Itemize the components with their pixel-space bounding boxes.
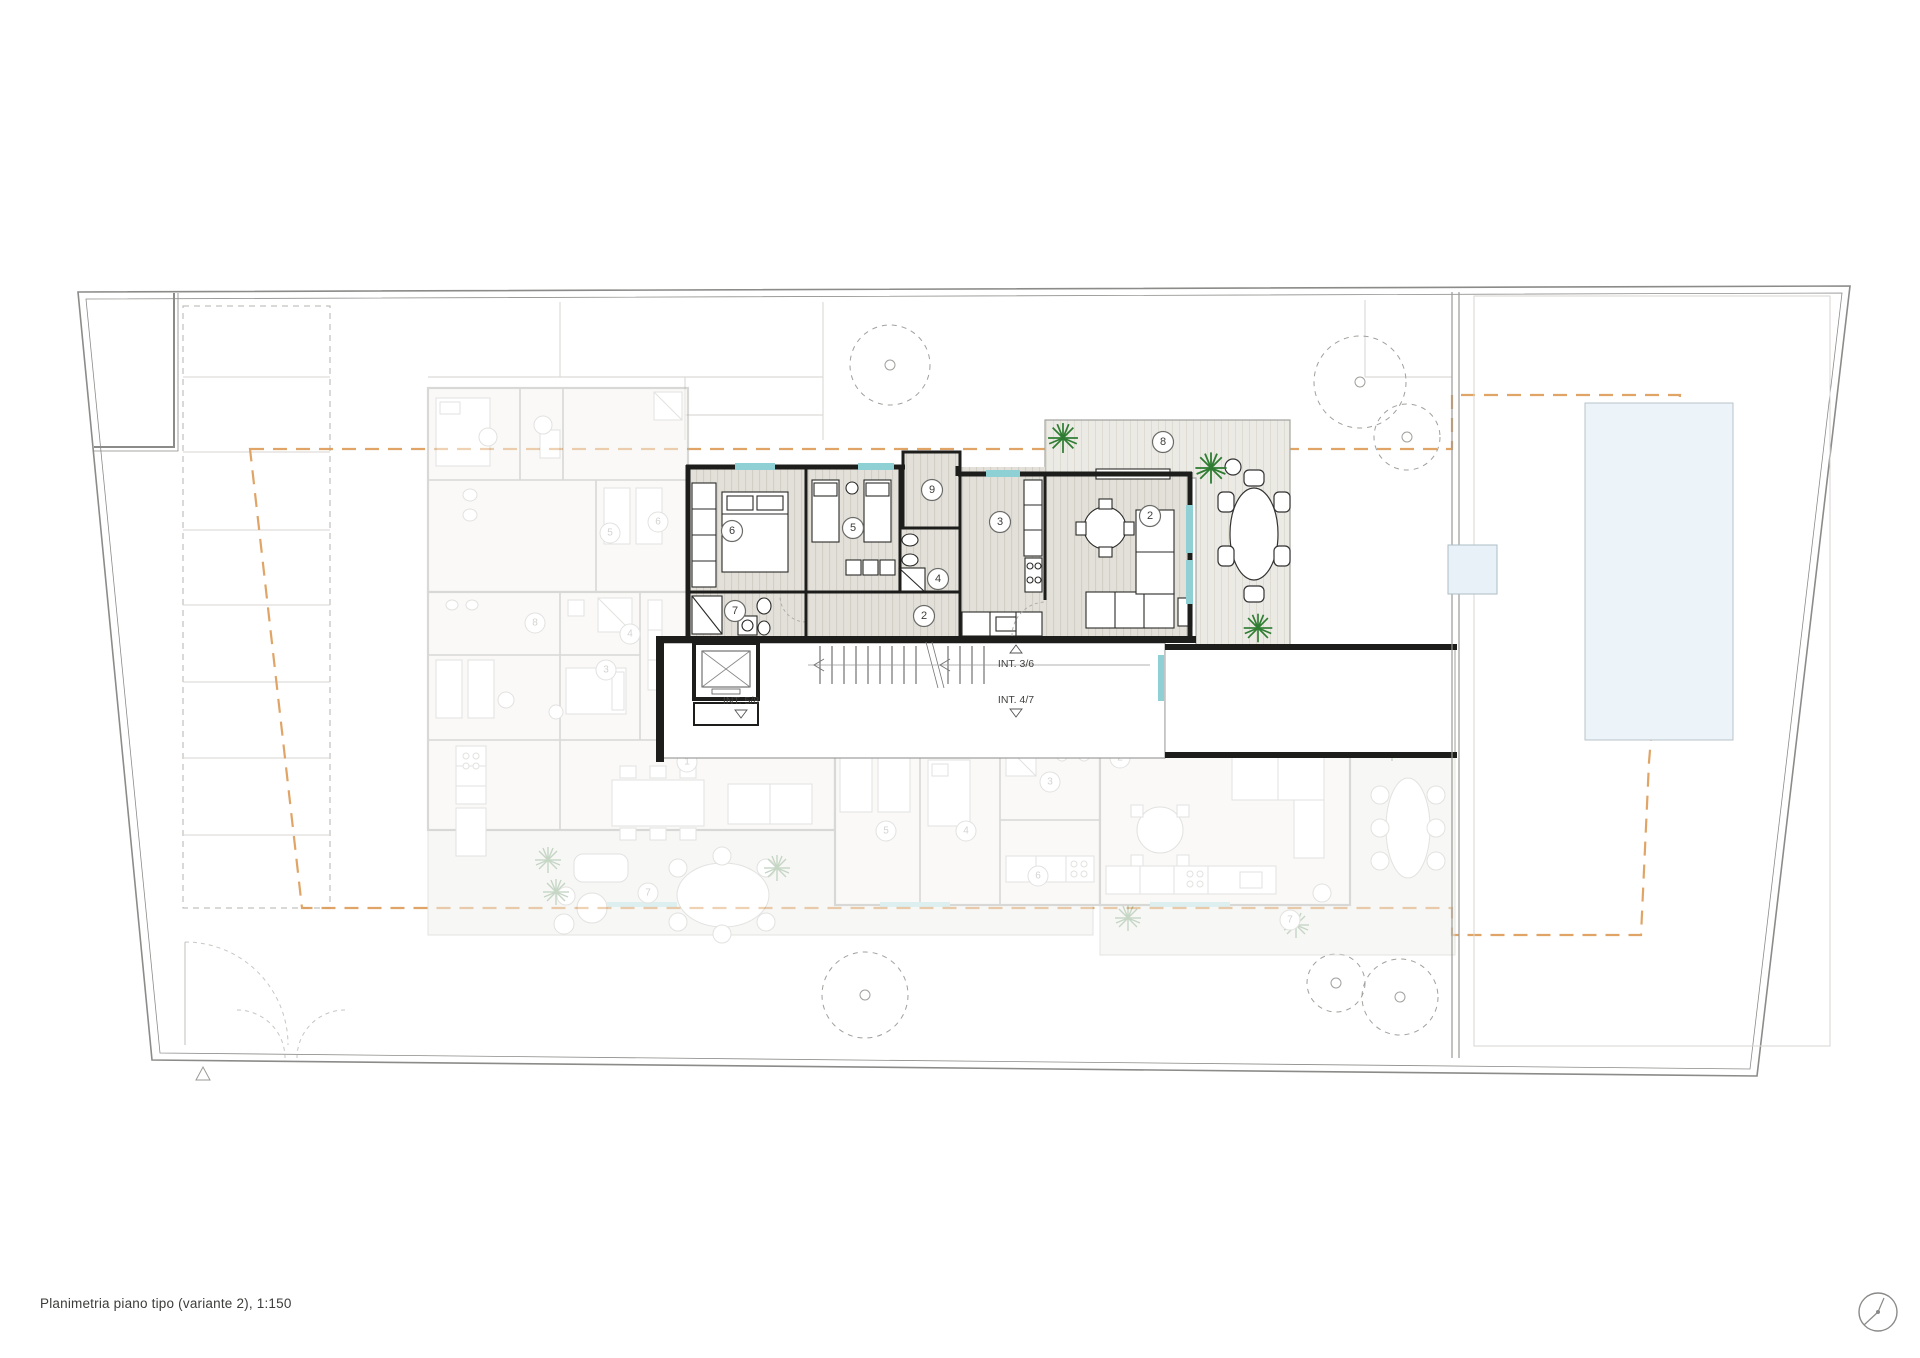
svg-text:8: 8 <box>532 618 538 629</box>
svg-text:7: 7 <box>732 605 738 617</box>
dining-table <box>1084 507 1126 549</box>
room-badge: 7 <box>725 601 746 622</box>
svg-text:4: 4 <box>935 573 941 585</box>
svg-text:8: 8 <box>1160 436 1166 448</box>
room-badge <box>479 428 497 446</box>
room-badge: 9 <box>922 480 943 501</box>
room-badge: 2 <box>914 606 935 627</box>
room-badge: 8 <box>1153 432 1174 453</box>
garden-connector <box>1448 545 1497 594</box>
svg-text:4: 4 <box>627 629 633 640</box>
unit-upper-left <box>428 388 688 592</box>
room-badge: 4 <box>928 569 949 590</box>
svg-text:3: 3 <box>1047 777 1053 788</box>
room-badge: 7 <box>638 883 658 903</box>
entry-triangle-marker <box>196 1067 210 1080</box>
gate-swing-arc <box>185 942 288 1045</box>
elevator <box>694 643 758 725</box>
room-badge: 6 <box>722 521 743 542</box>
label-int-3-6: INT. 3/6 <box>998 658 1034 670</box>
room-badge: 8 <box>525 613 545 633</box>
room-badge: 3 <box>596 660 616 680</box>
svg-text:7: 7 <box>1287 915 1293 926</box>
svg-text:6: 6 <box>1035 871 1041 882</box>
core-window <box>1158 655 1164 701</box>
svg-text:3: 3 <box>997 516 1003 528</box>
room-badge: 4 <box>956 821 976 841</box>
room-badge: 5 <box>600 523 620 543</box>
room-badge: 4 <box>620 624 640 644</box>
pool <box>1585 403 1733 740</box>
kitchen-cabinets <box>1024 480 1042 556</box>
sofa <box>1086 592 1174 628</box>
room-badge: 5 <box>843 518 864 539</box>
room-badge: 6 <box>648 512 668 532</box>
room-badge: 3 <box>990 512 1011 533</box>
floor-plan-sheet: 5 6 8 4 3 2 1 7 1 5 4 3 6 2 7 <box>0 0 1920 1358</box>
label-int-5-8: INT. 5/8 <box>723 695 759 707</box>
label-int-4-7: INT. 4/7 <box>998 694 1034 706</box>
room-badge: 3 <box>1040 772 1060 792</box>
svg-text:3: 3 <box>603 665 609 676</box>
tree-icon <box>850 325 930 405</box>
svg-text:7: 7 <box>645 888 651 899</box>
svg-text:6: 6 <box>729 525 735 537</box>
unit-lower-right <box>1100 740 1350 905</box>
svg-text:4: 4 <box>963 826 969 837</box>
bridge-wing <box>1165 644 1457 758</box>
room-badge: 2 <box>1140 506 1161 527</box>
tree-icon <box>1314 336 1406 428</box>
highlighted-unit <box>686 452 1193 643</box>
svg-text:6: 6 <box>655 517 661 528</box>
room-badge <box>534 416 552 434</box>
tree-icon <box>822 952 908 1038</box>
svg-text:5: 5 <box>850 522 856 534</box>
drawing-caption: Planimetria piano tipo (variante 2), 1:1… <box>40 1296 292 1311</box>
tree-icon <box>1374 404 1440 470</box>
entrance-gates <box>185 942 345 1080</box>
svg-text:9: 9 <box>929 484 935 496</box>
svg-text:5: 5 <box>883 826 889 837</box>
room-badge: 6 <box>1028 866 1048 886</box>
tree-icon <box>1362 959 1438 1035</box>
room-badge: 7 <box>1280 910 1300 930</box>
floor-plan-drawing: 5 6 8 4 3 2 1 7 1 5 4 3 6 2 7 <box>0 0 1920 1358</box>
parking-spaces <box>183 306 330 908</box>
north-indicator-icon <box>1859 1293 1897 1331</box>
stair-core: INT. 5/8 INT. 3/6 INT. 4/7 <box>656 636 1196 762</box>
svg-text:2: 2 <box>921 610 927 622</box>
side-table <box>1225 459 1241 475</box>
tree-icon <box>1307 954 1365 1012</box>
svg-text:2: 2 <box>1147 510 1153 522</box>
room-badge: 5 <box>876 821 896 841</box>
boundary-notch <box>94 293 174 447</box>
svg-text:5: 5 <box>607 528 613 539</box>
